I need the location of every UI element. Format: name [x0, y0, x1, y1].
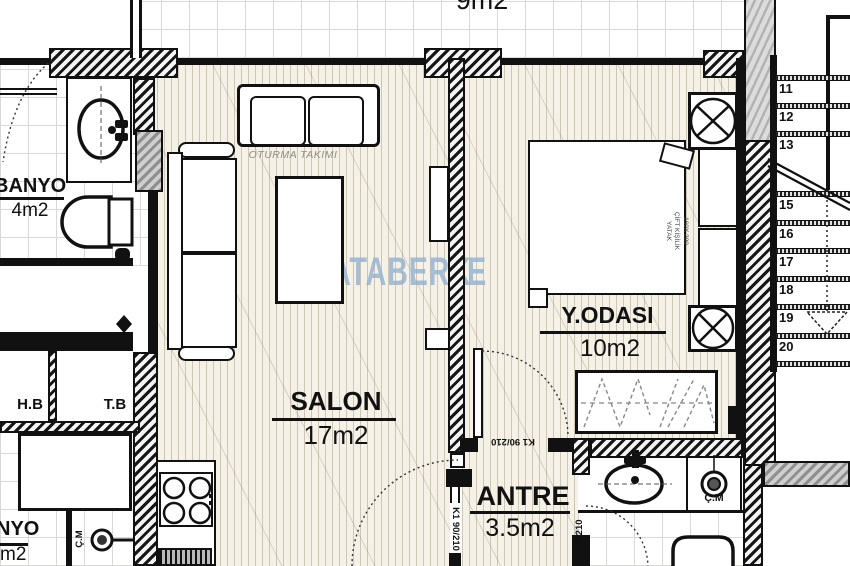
- door-spec-label: 80/210: [572, 508, 586, 560]
- door-swing-arc: [3, 60, 52, 162]
- burner-icon: [164, 503, 184, 523]
- bed-size-line: YATAK: [663, 212, 672, 250]
- burner-icon: [164, 478, 184, 498]
- bed-size-line: ÇİFT KİŞİLİK: [672, 212, 681, 250]
- washer-label: Ç.M: [692, 493, 736, 504]
- washer-label: Ç.M: [72, 519, 86, 559]
- bed-size-note: 160X 200 ÇİFT KİŞİLİK YATAK: [659, 199, 693, 263]
- banyo-label: BANYO: [0, 176, 66, 197]
- label-underline: [540, 331, 666, 334]
- seating-set-note: OTURMA TAKIMI: [238, 150, 348, 161]
- burner-icon: [190, 503, 210, 523]
- bedroom-label: Y.ODASI: [545, 303, 670, 327]
- pillow: [660, 143, 694, 168]
- tb-label: T.B: [90, 397, 140, 413]
- stair-number: 19: [779, 310, 803, 325]
- balcony-area-label: 9m2: [440, 0, 524, 14]
- banyo2-area-label: m2: [0, 545, 26, 565]
- stair-arrow-icon: [807, 312, 847, 334]
- stair-number: 20: [779, 339, 803, 354]
- antre-area-label: 3.5m2: [470, 515, 570, 541]
- burner-icon: [190, 478, 210, 498]
- floor-plan: ATABERK E: [0, 0, 850, 566]
- banyo-area-label: 4m2: [2, 201, 58, 221]
- stair-number: 13: [779, 137, 803, 152]
- door-spec-label: K1 90/210: [476, 434, 550, 449]
- stair-number: 17: [779, 254, 803, 269]
- banyo2-label: NYO: [0, 519, 39, 540]
- diamond-marker: [116, 315, 132, 333]
- antre-label: ANTRE: [470, 482, 576, 510]
- stair-number: 16: [779, 226, 803, 241]
- stair-number: 12: [779, 109, 803, 124]
- salon-area-label: 17m2: [276, 422, 396, 449]
- door-spec-label: K1 90/210: [449, 499, 463, 559]
- door-swing-arc: [482, 351, 568, 437]
- hb-label: H.B: [5, 397, 55, 413]
- door-swing-arc: [586, 506, 648, 566]
- bed-size-line: 160X 200: [680, 212, 689, 250]
- toilet-icon: [62, 197, 111, 247]
- fixtures-overlay: [0, 0, 850, 566]
- bedroom-area-label: 10m2: [550, 336, 670, 361]
- toilet-icon: [673, 537, 733, 566]
- door-swing-arc: [352, 460, 458, 566]
- stair-number: 15: [779, 197, 803, 212]
- stair-number: 18: [779, 282, 803, 297]
- stair-number: 11: [779, 81, 803, 96]
- salon-label: SALON: [276, 388, 396, 415]
- door-leaf: [474, 349, 482, 437]
